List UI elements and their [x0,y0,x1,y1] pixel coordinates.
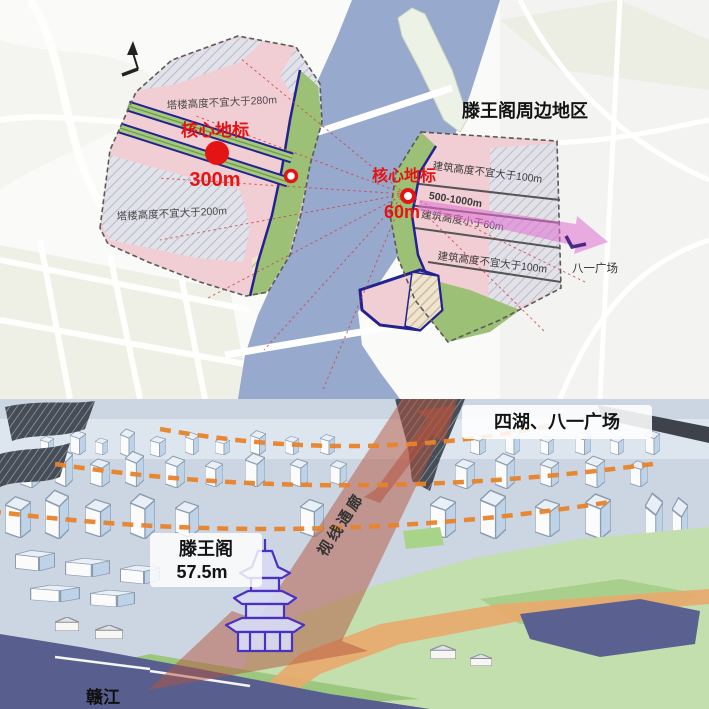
west-core-landmark-dot [205,141,229,165]
destination-label: 四湖、八一广场 [494,411,620,432]
pavilion-name: 滕王阁 [179,538,233,559]
screenshot: 塔楼高度不宜大于280m 塔楼高度不宜大于200m 建筑高度不宜大于100m 5… [0,0,709,709]
planning-map: 塔楼高度不宜大于280m 塔楼高度不宜大于200m 建筑高度不宜大于100m 5… [0,0,709,399]
destination-label-group: 四湖、八一广场 [462,405,652,439]
west-riverfront-ring-marker [286,171,297,182]
west-core-landmark-height: 300m [189,169,240,191]
east-core-landmark-label: 核心地标 [372,166,436,185]
map-title: 滕王阁周边地区 [462,100,588,121]
pavilion-label-group: 滕王阁 57.5m [150,533,262,587]
river-label: 赣江 [86,687,120,707]
perspective-view: 四湖、八一广场 滕王阁 57.5m 视线通廊 赣江 [0,399,709,709]
east-core-landmark-height: 60m [384,202,420,222]
bayi-square-label: 八一广场 [572,261,618,275]
west-core-landmark-label: 核心地标 [181,120,249,140]
pavilion-height: 57.5m [176,562,227,582]
east-core-landmark-ring [402,190,414,202]
